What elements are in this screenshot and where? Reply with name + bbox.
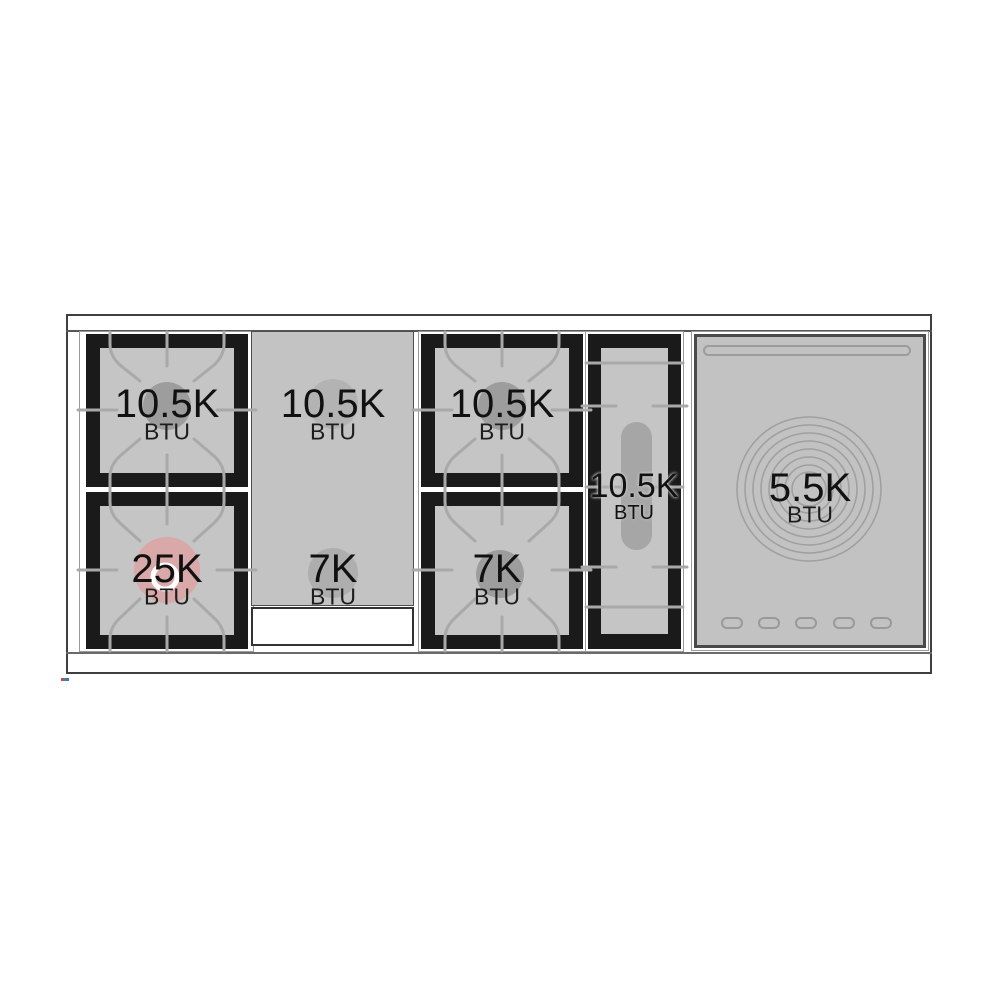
burner-unit-middle-top: BTU <box>479 421 525 444</box>
front-trim-divider <box>66 652 932 654</box>
corner-pixel-artifact <box>61 678 69 681</box>
griddle-drip-tray <box>251 607 414 646</box>
burner-value-oval: 10.5K <box>590 469 679 503</box>
burner-unit-left-bottom: BTU <box>144 586 190 609</box>
burner-unit-left-top: BTU <box>144 421 190 444</box>
burner-unit-french-plate: BTU <box>787 504 833 527</box>
burner-unit-oval: BTU <box>614 503 654 523</box>
burner-unit-griddle-top: BTU <box>310 421 356 444</box>
burner-unit-middle-bottom: BTU <box>474 586 520 609</box>
burner-unit-griddle-bottom: BTU <box>310 586 356 609</box>
